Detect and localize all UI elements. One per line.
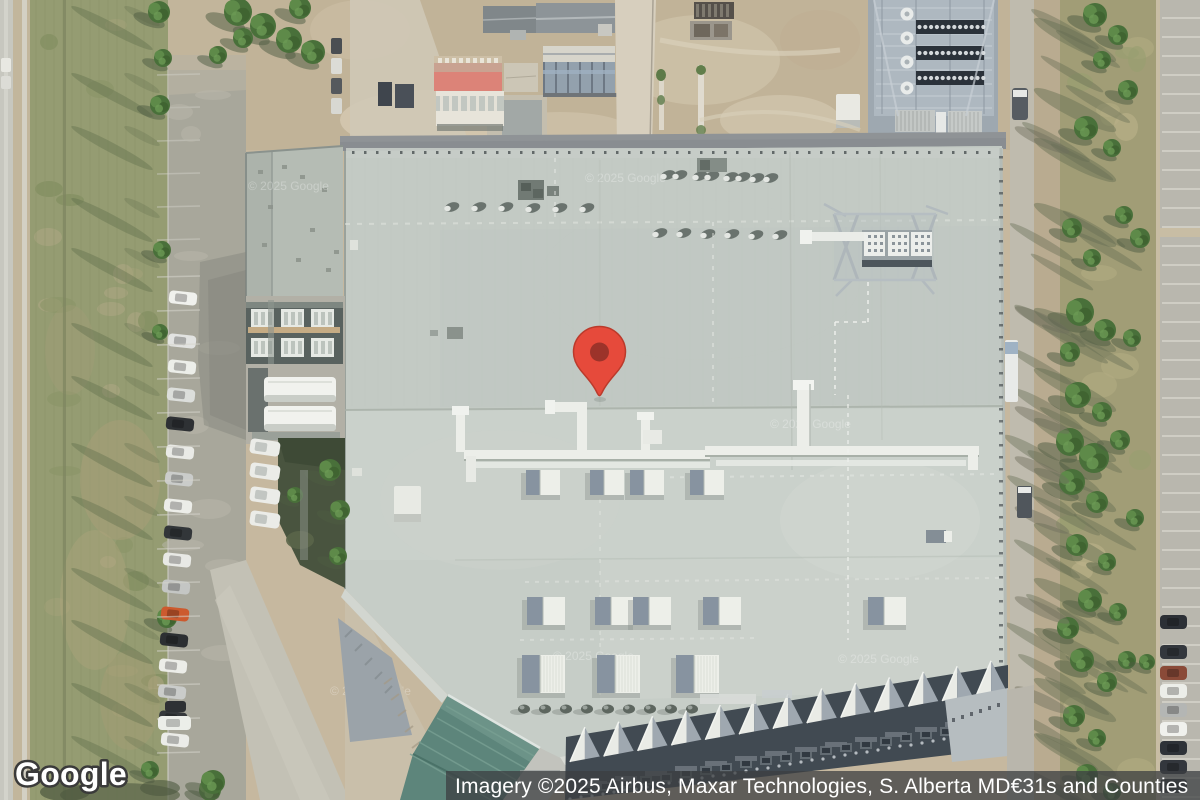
svg-text:© 2025 Google: © 2025 Google bbox=[585, 171, 666, 185]
svg-text:© 2025 Google: © 2025 Google bbox=[838, 652, 919, 666]
svg-text:Google: Google bbox=[15, 756, 127, 792]
svg-text:Imagery ©2025 Airbus, Maxar Te: Imagery ©2025 Airbus, Maxar Technologies… bbox=[455, 775, 1188, 798]
svg-text:© 2025 Google: © 2025 Google bbox=[248, 179, 329, 193]
